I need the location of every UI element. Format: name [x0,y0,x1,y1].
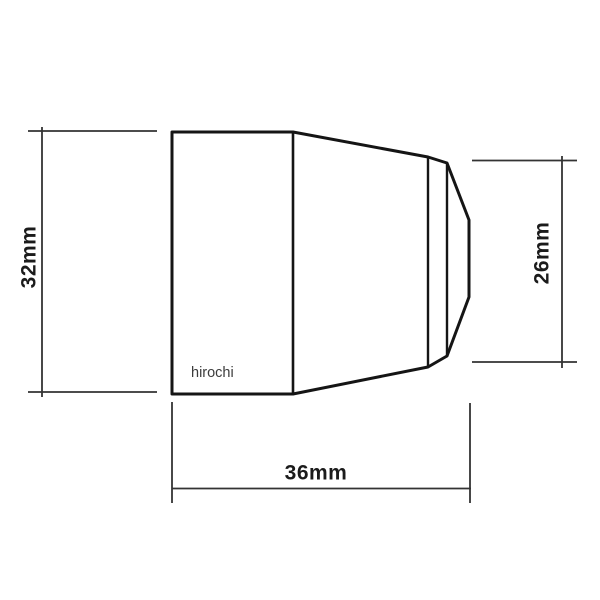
tip-dimension-label: 26mm [531,222,554,285]
dimension-tip-height [472,156,577,368]
drawing-svg: 32mm 26mm 36mm hirochi [0,0,600,600]
part-outline [172,132,469,394]
height-dimension-label: 32mm [18,226,41,289]
length-dimension-label: 36mm [285,462,348,485]
dimension-overall-height [28,127,157,397]
dimension-overall-length [172,402,471,503]
part-shape [172,132,469,394]
watermark-text: hirochi [191,365,234,381]
technical-drawing-canvas: 32mm 26mm 36mm hirochi [0,0,600,600]
